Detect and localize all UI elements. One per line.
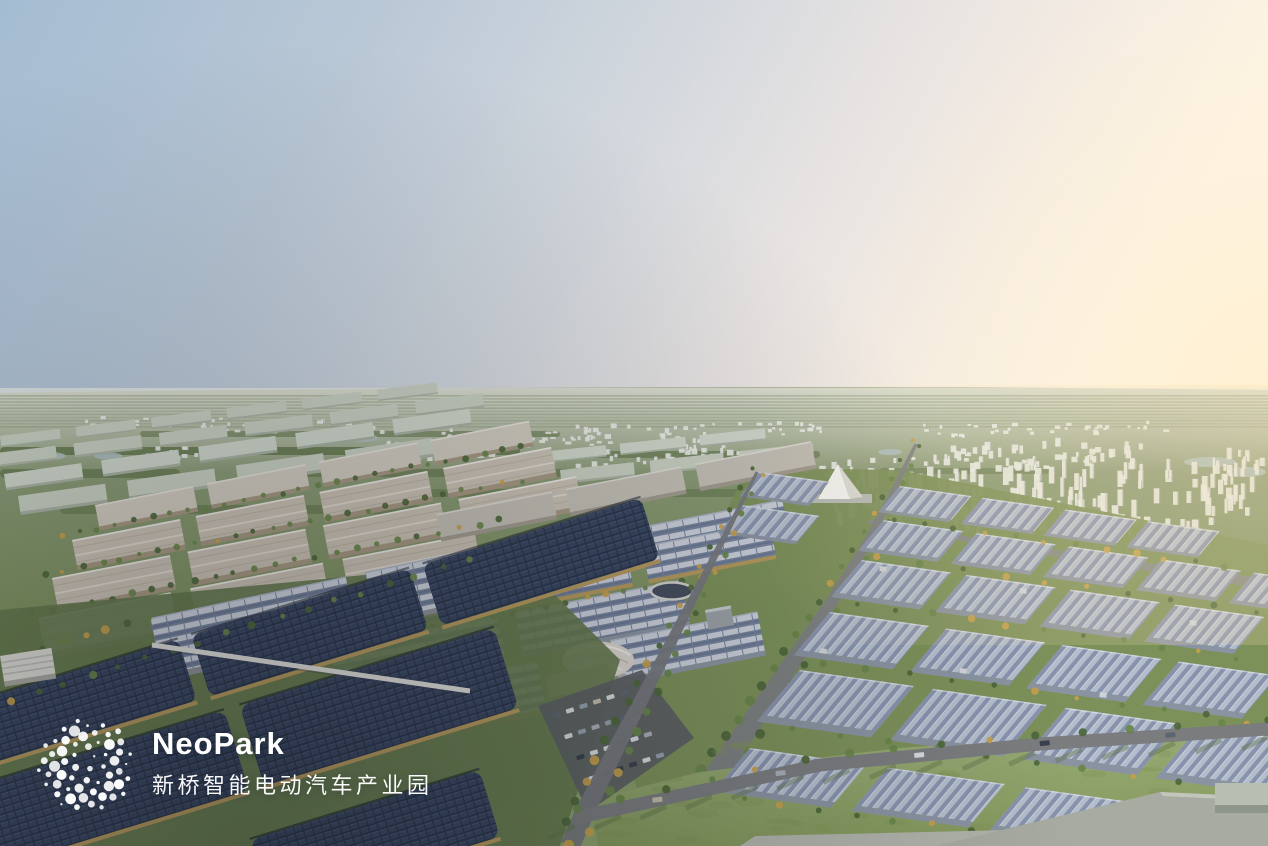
logo-text-block: NeoPark 新桥智能电动汽车产业园 bbox=[152, 728, 433, 800]
logo-wordmark: NeoPark bbox=[152, 728, 433, 759]
aerial-render-page: NeoPark 新桥智能电动汽车产业园 bbox=[0, 0, 1268, 846]
neopark-logo: NeoPark 新桥智能电动汽车产业园 bbox=[36, 712, 433, 816]
logo-subtitle-cn: 新桥智能电动汽车产业园 bbox=[152, 768, 433, 800]
warm-light-wash bbox=[700, 385, 1268, 645]
dot-swirl-logo-icon bbox=[36, 712, 136, 816]
